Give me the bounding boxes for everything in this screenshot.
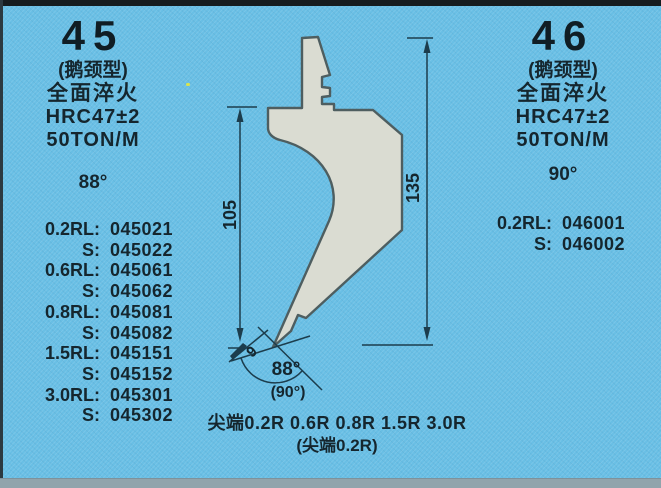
part-code-row: S: 045302 xyxy=(0,405,186,426)
part-size-label: 0.2RL: xyxy=(470,213,552,234)
print-speck xyxy=(186,83,190,86)
dim-arrow-up-icon xyxy=(424,39,431,53)
part-code-row: 0.2RL: 045021 xyxy=(0,219,186,240)
product-45-panel: 45 (鹅颈型) 全面淬火 HRC47±2 50TON/M 88° 0.2RL:… xyxy=(0,0,186,426)
tonnage-label: 50TON/M xyxy=(0,129,186,151)
type-label: (鹅颈型) xyxy=(0,60,186,82)
punch-profile xyxy=(268,37,402,347)
part-size-label: 0.8RL: xyxy=(0,302,100,323)
part-size-label: S: xyxy=(0,364,100,385)
hardness-label: HRC47±2 xyxy=(470,106,656,129)
part-code-row: S: 045152 xyxy=(0,364,186,385)
dim-arrow-down-icon xyxy=(237,328,244,342)
dim-arrow-down-icon xyxy=(424,327,431,341)
dimension-105: 105 xyxy=(220,107,257,348)
dim-105-label: 105 xyxy=(220,200,240,230)
part-code-list: 0.2RL: 046001 S: 046002 xyxy=(470,213,656,254)
part-code-row: 0.6RL: 045061 xyxy=(0,260,186,281)
part-code-value: 046002 xyxy=(562,234,625,255)
tip-radius-caption: 尖端0.2R 0.6R 0.8R 1.5R 3.0R xyxy=(167,413,507,434)
model-number: 45 xyxy=(0,14,186,58)
part-size-label: 1.5RL: xyxy=(0,343,100,364)
part-code-row: 0.2RL: 046001 xyxy=(470,213,656,234)
tip-radius-caption-alt: (尖端0.2R) xyxy=(167,435,507,456)
part-code-row: 0.8RL: 045081 xyxy=(0,302,186,323)
tip-angle-label: 88° xyxy=(272,359,301,380)
part-size-label: 3.0RL: xyxy=(0,385,100,406)
part-code-list: 0.2RL: 045021 S: 045022 0.6RL: 045061 S:… xyxy=(0,219,186,426)
part-size-label: S: xyxy=(0,281,100,302)
part-size-label: 0.6RL: xyxy=(0,260,100,281)
part-code-value: 045022 xyxy=(110,240,173,261)
scan-edge-left xyxy=(0,0,3,488)
tonnage-label: 50TON/M xyxy=(470,129,656,151)
tip-angle-dimension: 9 88° (90°) xyxy=(229,327,322,401)
dim-arrow-up-icon xyxy=(237,108,244,122)
part-size-label: S: xyxy=(0,323,100,344)
print-speck xyxy=(517,117,520,120)
part-size-label: S: xyxy=(0,405,100,426)
part-code-value: 045082 xyxy=(110,323,173,344)
part-code-value: 045151 xyxy=(110,343,173,364)
part-code-value: 045301 xyxy=(110,385,173,406)
part-code-row: S: 045082 xyxy=(0,323,186,344)
working-angle: 88° xyxy=(0,173,186,192)
part-size-label: S: xyxy=(0,240,100,261)
part-code-row: 1.5RL: 045151 xyxy=(0,343,186,364)
part-size-label: 0.2RL: xyxy=(0,219,100,240)
type-label: (鹅颈型) xyxy=(470,60,656,82)
scan-edge-bottom xyxy=(0,478,661,488)
working-angle: 90° xyxy=(470,165,656,184)
part-size-label: S: xyxy=(470,234,552,255)
part-code-value: 045021 xyxy=(110,219,173,240)
part-code-value: 045061 xyxy=(110,260,173,281)
product-46-panel: 46 (鹅颈型) 全面淬火 HRC47±2 50TON/M 90° 0.2RL:… xyxy=(470,0,656,254)
part-code-row: S: 046002 xyxy=(470,234,656,255)
part-code-row: S: 045022 xyxy=(0,240,186,261)
part-code-row: S: 045062 xyxy=(0,281,186,302)
catalog-page: 105 135 9 88° (90°) 45 (鹅颈型) 全面淬火 HRC47±… xyxy=(0,0,661,488)
dim-135-label: 135 xyxy=(403,173,423,203)
hardness-label: HRC47±2 xyxy=(0,106,186,129)
part-code-value: 045062 xyxy=(110,281,173,302)
part-code-row: 3.0RL: 045301 xyxy=(0,385,186,406)
part-code-value: 046001 xyxy=(562,213,625,234)
part-code-value: 045152 xyxy=(110,364,173,385)
part-code-value: 045081 xyxy=(110,302,173,323)
quench-label: 全面淬火 xyxy=(0,82,186,106)
scan-edge-top xyxy=(0,0,661,6)
quench-label: 全面淬火 xyxy=(470,82,656,106)
model-number: 46 xyxy=(470,14,656,58)
part-code-value: 045302 xyxy=(110,405,173,426)
tip-angle-alt-label: (90°) xyxy=(271,384,306,401)
